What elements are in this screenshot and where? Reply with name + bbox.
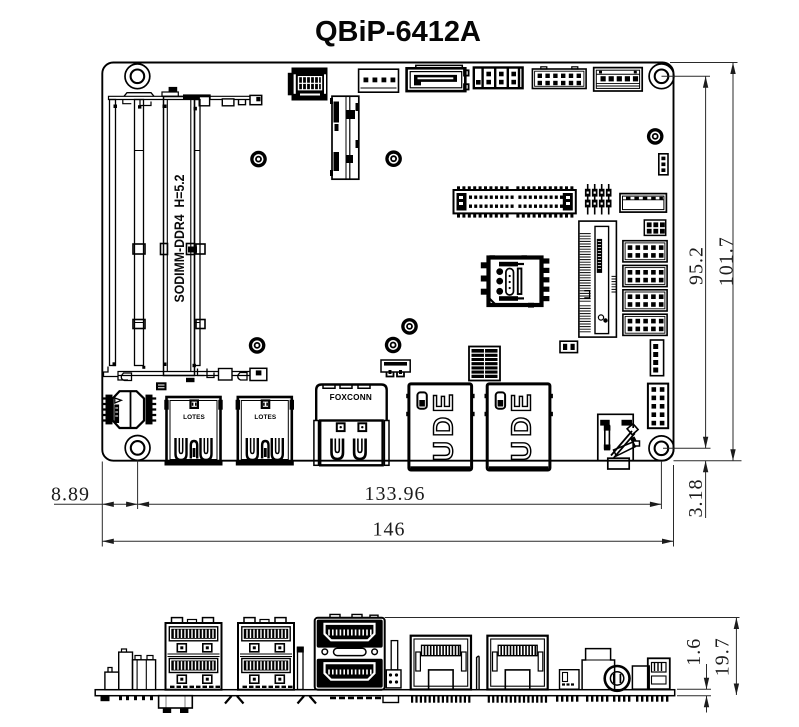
svg-text:FOXCONN: FOXCONN <box>330 393 372 402</box>
svg-text:101.7: 101.7 <box>716 236 738 286</box>
svg-text:133.96: 133.96 <box>365 483 426 505</box>
svg-text:3.18: 3.18 <box>685 479 707 518</box>
svg-text:146: 146 <box>373 519 406 541</box>
svg-text:UDE: UDE <box>506 389 537 461</box>
svg-text:LOTES: LOTES <box>254 414 276 421</box>
svg-text:LOTES: LOTES <box>183 414 205 421</box>
svg-text:QBiP-6412A: QBiP-6412A <box>315 16 481 48</box>
svg-text:UDE: UDE <box>427 389 458 461</box>
svg-text:95.2: 95.2 <box>686 246 708 285</box>
svg-text:19.7: 19.7 <box>712 637 734 676</box>
svg-text:8.89: 8.89 <box>51 484 90 506</box>
svg-text:SODIMM-DDR4 H=5.2: SODIMM-DDR4 H=5.2 <box>172 174 187 302</box>
svg-text:1.6: 1.6 <box>683 638 705 666</box>
